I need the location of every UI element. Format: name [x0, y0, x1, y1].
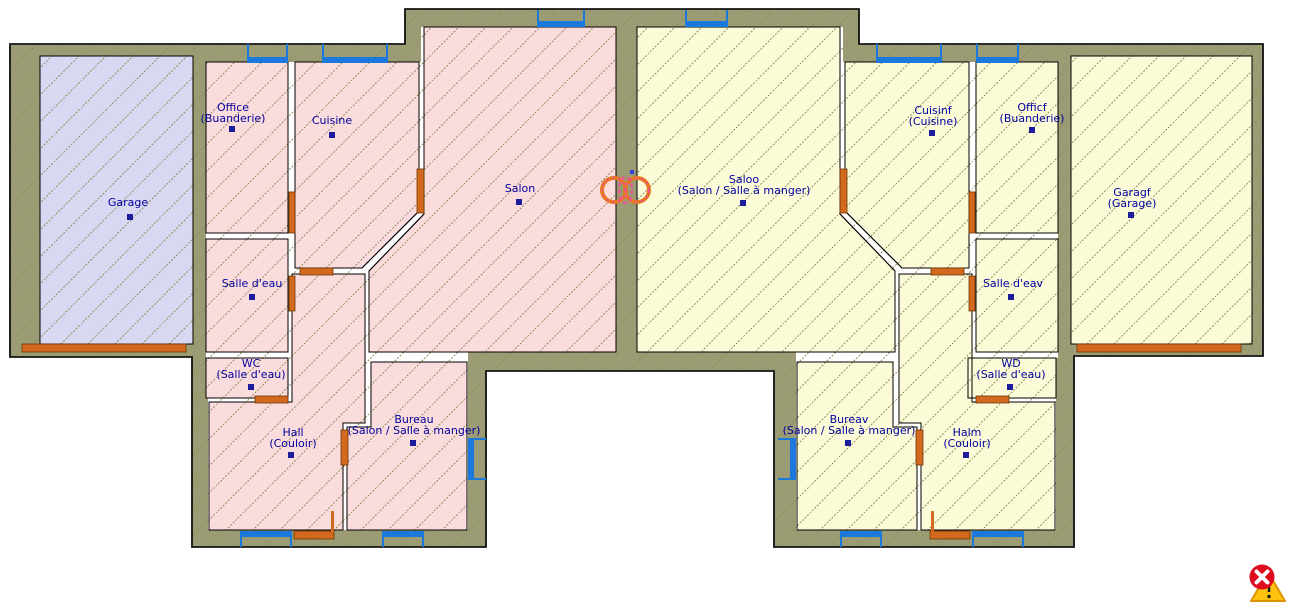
svg-text:(Salon / Salle à manger): (Salon / Salle à manger): [348, 424, 481, 437]
room-marker-wd: [1007, 384, 1013, 390]
svg-text:(Salon / Salle à manger): (Salon / Salle à manger): [678, 184, 811, 197]
door-wd[interactable]: [976, 396, 1009, 403]
room-marker-garage: [127, 214, 133, 220]
room-garagf[interactable]: [1071, 56, 1252, 344]
room-marker-salle-deau: [249, 294, 255, 300]
svg-text:(Couloir): (Couloir): [943, 437, 990, 450]
svg-text:(Salon / Salle à manger): (Salon / Salle à manger): [783, 424, 916, 437]
svg-text:Cuisine: Cuisine: [312, 114, 352, 127]
door-cuisine-east[interactable]: [417, 169, 424, 213]
error-cursor-icon: [1250, 565, 1286, 602]
room-marker-salon: [516, 199, 522, 205]
door-cuisinf-west[interactable]: [840, 169, 847, 213]
door-entrance-right[interactable]: [930, 531, 970, 539]
floor-plan-canvas[interactable]: GarageOffice(Buanderie)CuisineSalle d'ea…: [0, 0, 1289, 603]
floor-plan-drawing: GarageOffice(Buanderie)CuisineSalle d'ea…: [0, 0, 1289, 603]
room-marker-cuisinf: [929, 130, 935, 136]
svg-text:(Salle d'eau): (Salle d'eau): [216, 368, 285, 381]
room-officf[interactable]: [976, 62, 1058, 233]
door-halm-bureav[interactable]: [916, 430, 923, 465]
svg-text:(Buanderie): (Buanderie): [201, 112, 266, 125]
door-salle-deav[interactable]: [969, 276, 975, 311]
svg-text:(Couloir): (Couloir): [269, 437, 316, 450]
room-marker-salle-deav: [1008, 294, 1014, 300]
room-marker-officf: [1029, 127, 1035, 133]
room-marker-bureau: [410, 440, 416, 446]
door-office[interactable]: [289, 192, 295, 233]
room-marker-halm: [963, 452, 969, 458]
room-marker-wc: [248, 384, 254, 390]
room-marker-bureav: [845, 440, 851, 446]
room-marker-cuisine: [329, 132, 335, 138]
room-marker-office: [229, 126, 235, 132]
svg-text:Garage: Garage: [108, 196, 149, 209]
svg-text:(Cuisine): (Cuisine): [909, 115, 958, 128]
room-salle-deav[interactable]: [976, 239, 1058, 352]
door-cuisinf-south[interactable]: [931, 268, 964, 275]
svg-text:(Salle d'eau): (Salle d'eau): [976, 368, 1045, 381]
door-leaf-1: [931, 511, 934, 532]
door-entrance-left[interactable]: [294, 531, 334, 539]
door-salle-deau[interactable]: [289, 276, 295, 311]
door-cuisine-south[interactable]: [300, 268, 333, 275]
svg-text:Salle d'eau: Salle d'eau: [222, 277, 283, 290]
door-leaf-0: [331, 511, 334, 532]
room-marker-garagf: [1128, 212, 1134, 218]
door-officf[interactable]: [969, 192, 975, 233]
room-office[interactable]: [206, 62, 288, 233]
svg-text:Salle d'eav: Salle d'eav: [983, 277, 1044, 290]
door-garage[interactable]: [22, 344, 186, 352]
svg-text:Salon: Salon: [505, 182, 536, 195]
door-wc[interactable]: [255, 396, 288, 403]
svg-text:(Garage): (Garage): [1108, 197, 1157, 210]
svg-text:(Buanderie): (Buanderie): [1000, 112, 1065, 125]
room-salle-deau[interactable]: [206, 239, 288, 352]
room-marker-saloo: [740, 200, 746, 206]
room-marker-hall: [288, 452, 294, 458]
door-garagf[interactable]: [1077, 344, 1241, 352]
